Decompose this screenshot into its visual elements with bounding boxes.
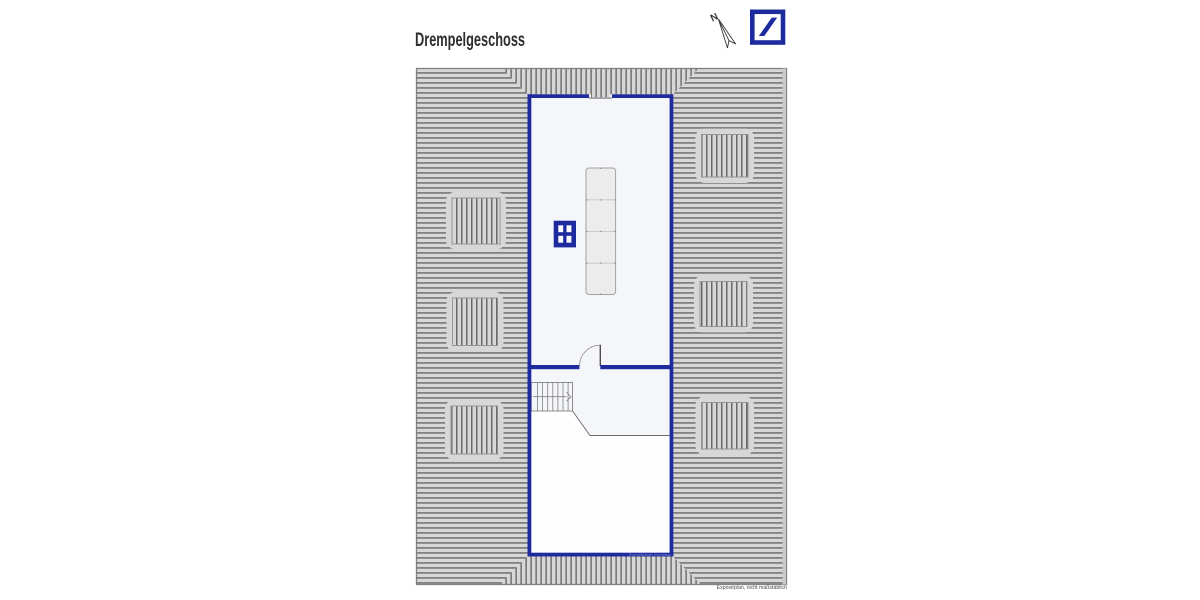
svg-text:N: N	[709, 11, 720, 24]
svg-text:RoomSketcher Grundrisse: RoomSketcher Grundrisse	[629, 553, 671, 557]
